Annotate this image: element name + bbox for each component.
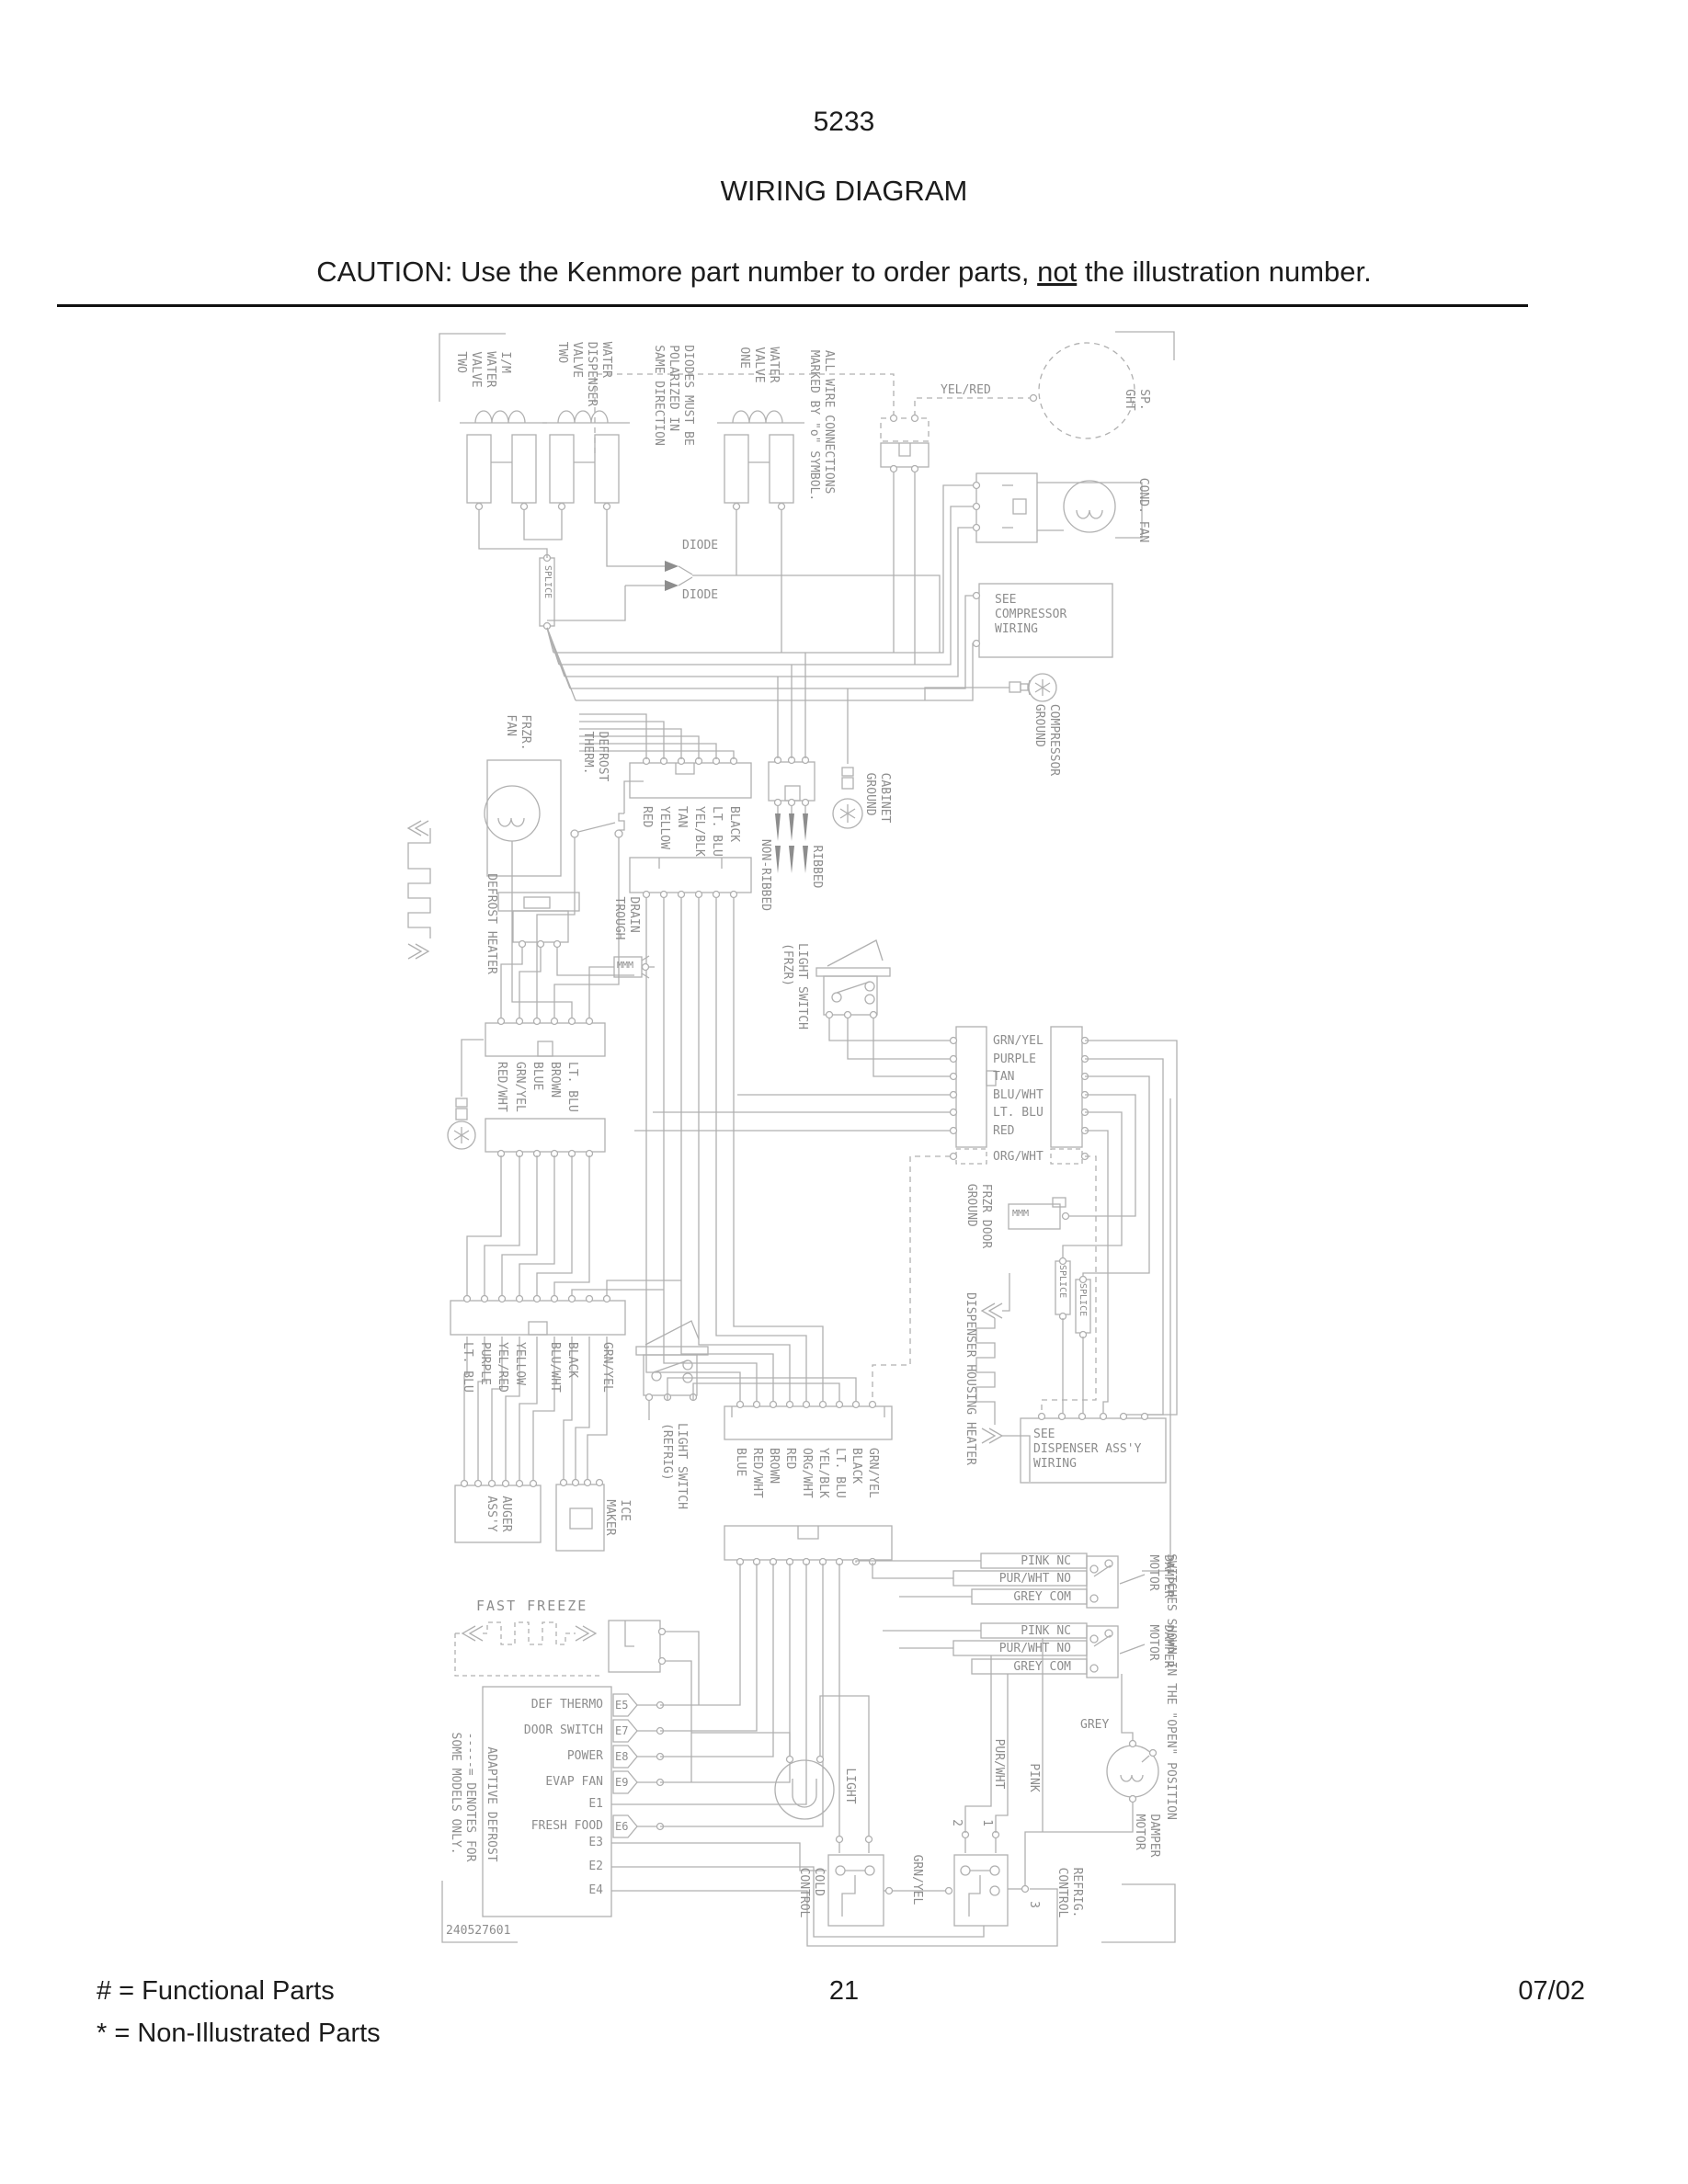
label-d-purple: PURPLE — [477, 1342, 492, 1385]
label-light-switch-frzr: LIGHT SWITCH (FRZR) — [780, 943, 809, 1029]
caution-underlined-word: not — [1037, 256, 1077, 288]
page-code: 5233 — [0, 107, 1688, 138]
label-wire-brown: BROWN — [547, 1062, 562, 1098]
board-row-evap-fan: EVAP FAN — [495, 1775, 603, 1790]
board-row-e2: E2 — [495, 1860, 603, 1874]
sw1-grey-com: GREY COM — [974, 1590, 1071, 1605]
cabinet-ground-lug — [833, 688, 862, 828]
label-wire-black: BLACK — [726, 806, 741, 842]
label-row-red: RED — [993, 1124, 1014, 1139]
light-switch-frzr-icon — [816, 940, 951, 1076]
board-row-def-thermo: DEF THERMO — [495, 1698, 603, 1712]
label-denotes-note: -----= DENOTES FOR SOME MODELS ONLY. — [448, 1733, 477, 1862]
label-row-org-wht: ORG/WHT — [993, 1150, 1044, 1165]
label-see-dispenser: SEE DISPENSER ASS'Y WIRING — [1033, 1428, 1141, 1472]
label-row-purple: PURPLE — [993, 1052, 1036, 1067]
label-light: LIGHT — [842, 1768, 857, 1803]
caution-note: CAUTION: Use the Kenmore part number to … — [0, 256, 1688, 289]
label-row-lt-blu: LT. BLU — [993, 1106, 1044, 1120]
label-e-red: RED — [782, 1448, 797, 1469]
cold-control-box — [828, 1564, 952, 1926]
label-auger-assy: AUGER ASS'Y — [484, 1496, 513, 1531]
label-see-compressor: SEE COMPRESSOR WIRING — [995, 593, 1066, 637]
label-defrost-heater: DEFROST HEATER — [484, 873, 498, 974]
sw2-purwht-no: PUR/WHT NO — [974, 1642, 1071, 1656]
label-ribbed: RIBBED — [809, 846, 824, 889]
label-compressor-ground: COMPRESSOR GROUND — [1032, 704, 1061, 776]
label-e-yel-blk: YEL/BLK — [815, 1448, 830, 1498]
board-row-door-switch: DOOR SWITCH — [495, 1723, 603, 1738]
sw2-grey-com: GREY COM — [974, 1660, 1071, 1675]
board-row-fresh-food: FRESH FOOD — [495, 1819, 603, 1834]
label-e-grn-yel: GRN/YEL — [865, 1448, 880, 1498]
label-dispenser-valve: WATER DISPENSER VALVE TWO — [554, 342, 613, 406]
label-light-switch-refrig: LIGHT SWITCH (REFRIG) — [659, 1423, 689, 1509]
label-defrost-therm: DEFROST THERM. — [580, 732, 610, 782]
cond-fan — [974, 473, 1143, 542]
label-wire-yellow: YELLOW — [656, 806, 671, 849]
refrig-control-box — [954, 1655, 1029, 1926]
board-term-e6: E6 — [615, 1820, 628, 1833]
sw1-pink-nc: PINK NC — [974, 1554, 1071, 1569]
label-d-lt-blu: LT. BLU — [460, 1342, 474, 1393]
wire-bundle-top — [547, 485, 976, 700]
label-grey: GREY — [1080, 1718, 1109, 1733]
label-adaptive-defrost: ADAPTIVE DEFROST — [484, 1746, 498, 1861]
label-part-number: 240527601 — [446, 1924, 510, 1939]
label-wire-red-wht: RED/WHT — [494, 1062, 508, 1112]
divider-rule — [57, 304, 1528, 307]
page-title: WIRING DIAGRAM — [0, 175, 1688, 208]
label-term-2: 2 — [949, 1819, 964, 1826]
label-wire-lt-blu: LT. BLU — [709, 806, 724, 857]
compressor-ground-lug — [925, 674, 1056, 701]
label-row-grn-yel: GRN/YEL — [993, 1034, 1044, 1049]
ice-maker-box — [556, 1480, 604, 1552]
label-e-black: BLACK — [849, 1448, 863, 1484]
label-cabinet-ground: CABINET GROUND — [862, 773, 892, 824]
label-frzr-door-ground: FRZR DOOR GROUND — [964, 1184, 993, 1248]
label-pur-wht: PUR/WHT — [991, 1739, 1006, 1790]
label-refrig-control: REFRIG. CONTROL — [1055, 1868, 1084, 1918]
label-diodes-note: DIODES MUST BE POLARIZED IN SAME DIRECTI… — [651, 345, 695, 446]
manual-page: 5233 WIRING DIAGRAM CAUTION: Use the Ken… — [0, 0, 1688, 2184]
label-d-yellow: YELLOW — [512, 1342, 527, 1385]
label-wire-yel-blk: YEL/BLK — [691, 806, 706, 857]
label-e-blue: BLUE — [733, 1448, 747, 1476]
label-water-valve-one: WATER VALVE ONE — [736, 347, 781, 382]
resistor-glyph-2: MMM — [1012, 1209, 1029, 1219]
caution-text-end: the illustration number. — [1077, 256, 1372, 288]
board-row-e3: E3 — [495, 1836, 603, 1850]
label-wire-lt-blu-2: LT. BLU — [565, 1062, 579, 1112]
label-disp-light-partial: SP. GHT — [1122, 389, 1151, 410]
label-splice-3: SPLICE — [1078, 1283, 1088, 1316]
board-term-e7: E7 — [615, 1724, 628, 1737]
label-e-red-wht: RED/WHT — [749, 1448, 764, 1498]
label-cold-control: COLD CONTROL — [796, 1868, 826, 1918]
water-valve-coils — [460, 411, 804, 510]
ribbed-connector — [769, 653, 815, 873]
label-ice-maker: ICE MAKER — [602, 1499, 632, 1535]
disp-connector — [881, 415, 929, 665]
label-diode-1: DIODE — [682, 539, 718, 553]
board-row-e4: E4 — [495, 1883, 603, 1898]
label-non-ribbed: NON-RIBBED — [758, 839, 772, 911]
label-d-grn-yel: GRN/YEL — [599, 1342, 614, 1393]
label-d-yel-red: YEL/RED — [495, 1342, 509, 1393]
label-splice-1: SPLICE — [542, 565, 553, 598]
light-bulb — [691, 1696, 869, 1836]
caution-text: CAUTION: Use the Kenmore part number to … — [316, 256, 1037, 288]
board-row-power: POWER — [495, 1749, 603, 1764]
wiring-diagram-graphics — [395, 317, 1204, 1962]
label-wire-blue: BLUE — [530, 1062, 544, 1090]
page-number: 21 — [0, 1976, 1688, 2007]
label-cond-fan: COND. FAN — [1135, 478, 1150, 542]
label-frzr-fan: FRZR. FAN — [503, 714, 532, 750]
label-d-black: BLACK — [565, 1342, 579, 1378]
board-term-e8: E8 — [615, 1750, 628, 1763]
label-wire-tan: TAN — [674, 806, 689, 827]
label-row-blu-wht: BLU/WHT — [993, 1088, 1044, 1103]
label-switches-note: SWITCHES SHOWN IN THE "OPEN" POSITION — [1163, 1553, 1178, 1820]
label-d-blu-wht: BLU/WHT — [547, 1342, 562, 1393]
label-e-brown: BROWN — [766, 1448, 781, 1484]
label-e-lt-blu: LT. BLU — [832, 1448, 847, 1498]
label-row-tan: TAN — [993, 1070, 1014, 1085]
sw1-purwht-no: PUR/WHT NO — [974, 1572, 1071, 1587]
label-wire-note: ALL WIRE CONNECTIONS MARKED BY "o" SYMBO… — [806, 350, 836, 501]
label-e-org-wht: ORG/WHT — [799, 1448, 814, 1498]
label-fast-freeze: FAST FREEZE — [476, 1598, 587, 1613]
label-diode-2: DIODE — [682, 588, 718, 603]
label-im-water-valve: I/M WATER VALVE TWO — [453, 351, 512, 387]
sw2-pink-nc: PINK NC — [974, 1624, 1071, 1639]
board-term-e5: E5 — [615, 1699, 628, 1712]
defrost-heater-element — [408, 821, 430, 959]
label-term-1: 1 — [979, 1819, 994, 1826]
resistor-glyph-1: MMM — [617, 961, 633, 971]
wiring-diagram: I/M WATER VALVE TWO WATER DISPENSER VALV… — [395, 317, 1204, 1962]
board-row-e1: E1 — [495, 1797, 603, 1812]
label-splice-2: SPLICE — [1057, 1265, 1067, 1298]
label-damper-motor-3: DAMPER MOTOR — [1132, 1814, 1161, 1858]
label-grn-yel-bottom: GRN/YEL — [909, 1855, 924, 1905]
label-term-3: 3 — [1026, 1901, 1041, 1908]
label-wire-red: RED — [639, 806, 654, 827]
dispenser-housing-heater — [976, 1273, 1030, 1482]
label-dispenser-heater: DISPENSER HOUSING HEATER — [963, 1292, 977, 1465]
label-pink: PINK — [1026, 1763, 1041, 1792]
label-wire-grn-yel: GRN/YEL — [512, 1062, 527, 1112]
label-yel-red: YEL/RED — [941, 383, 991, 398]
revision-date: 07/02 — [1518, 1976, 1585, 2007]
board-term-e9: E9 — [615, 1776, 628, 1789]
label-drain-trough: DRAIN TROUGH — [611, 897, 641, 940]
legend-non-illustrated-parts: * = Non-Illustrated Parts — [97, 2019, 381, 2049]
